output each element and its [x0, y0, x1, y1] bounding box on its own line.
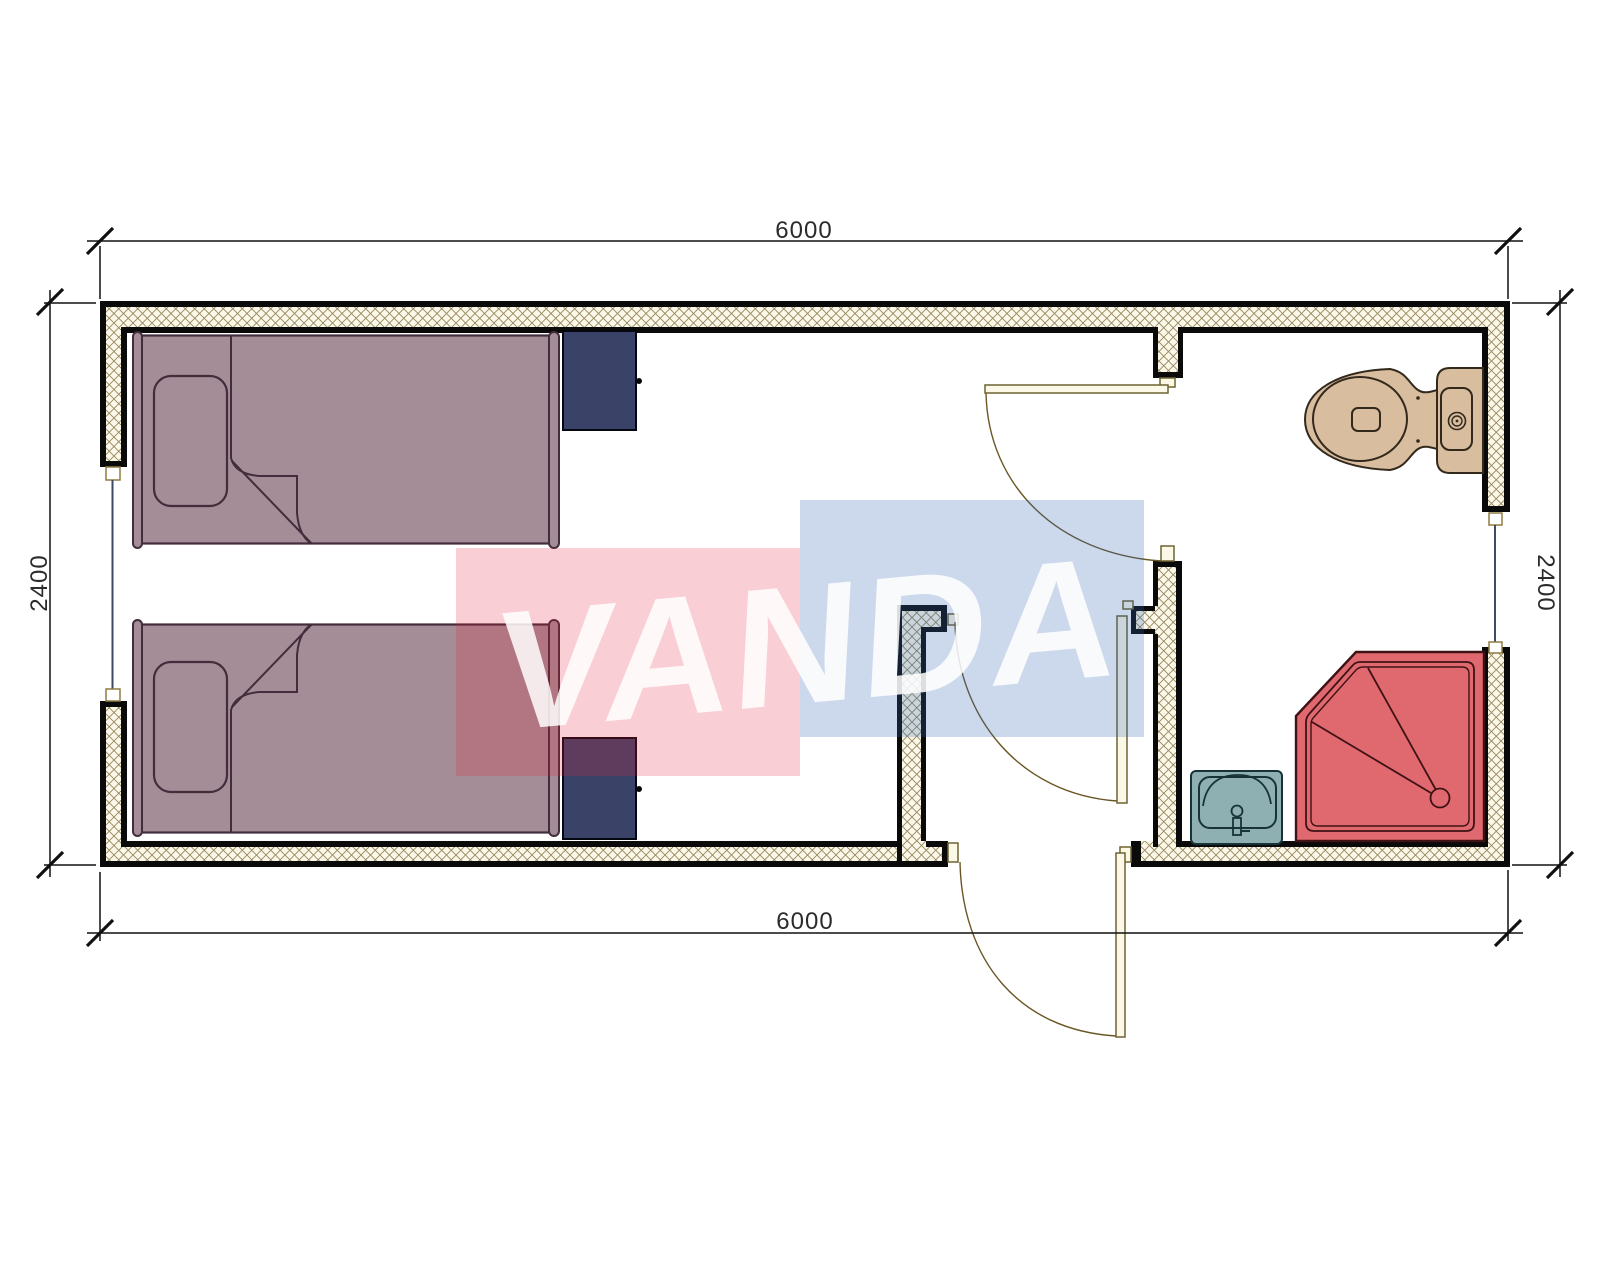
svg-text:6000: 6000	[776, 908, 833, 935]
svg-text:2400: 2400	[1532, 554, 1559, 611]
svg-text:6000: 6000	[775, 217, 832, 244]
svg-text:2400: 2400	[26, 554, 53, 611]
